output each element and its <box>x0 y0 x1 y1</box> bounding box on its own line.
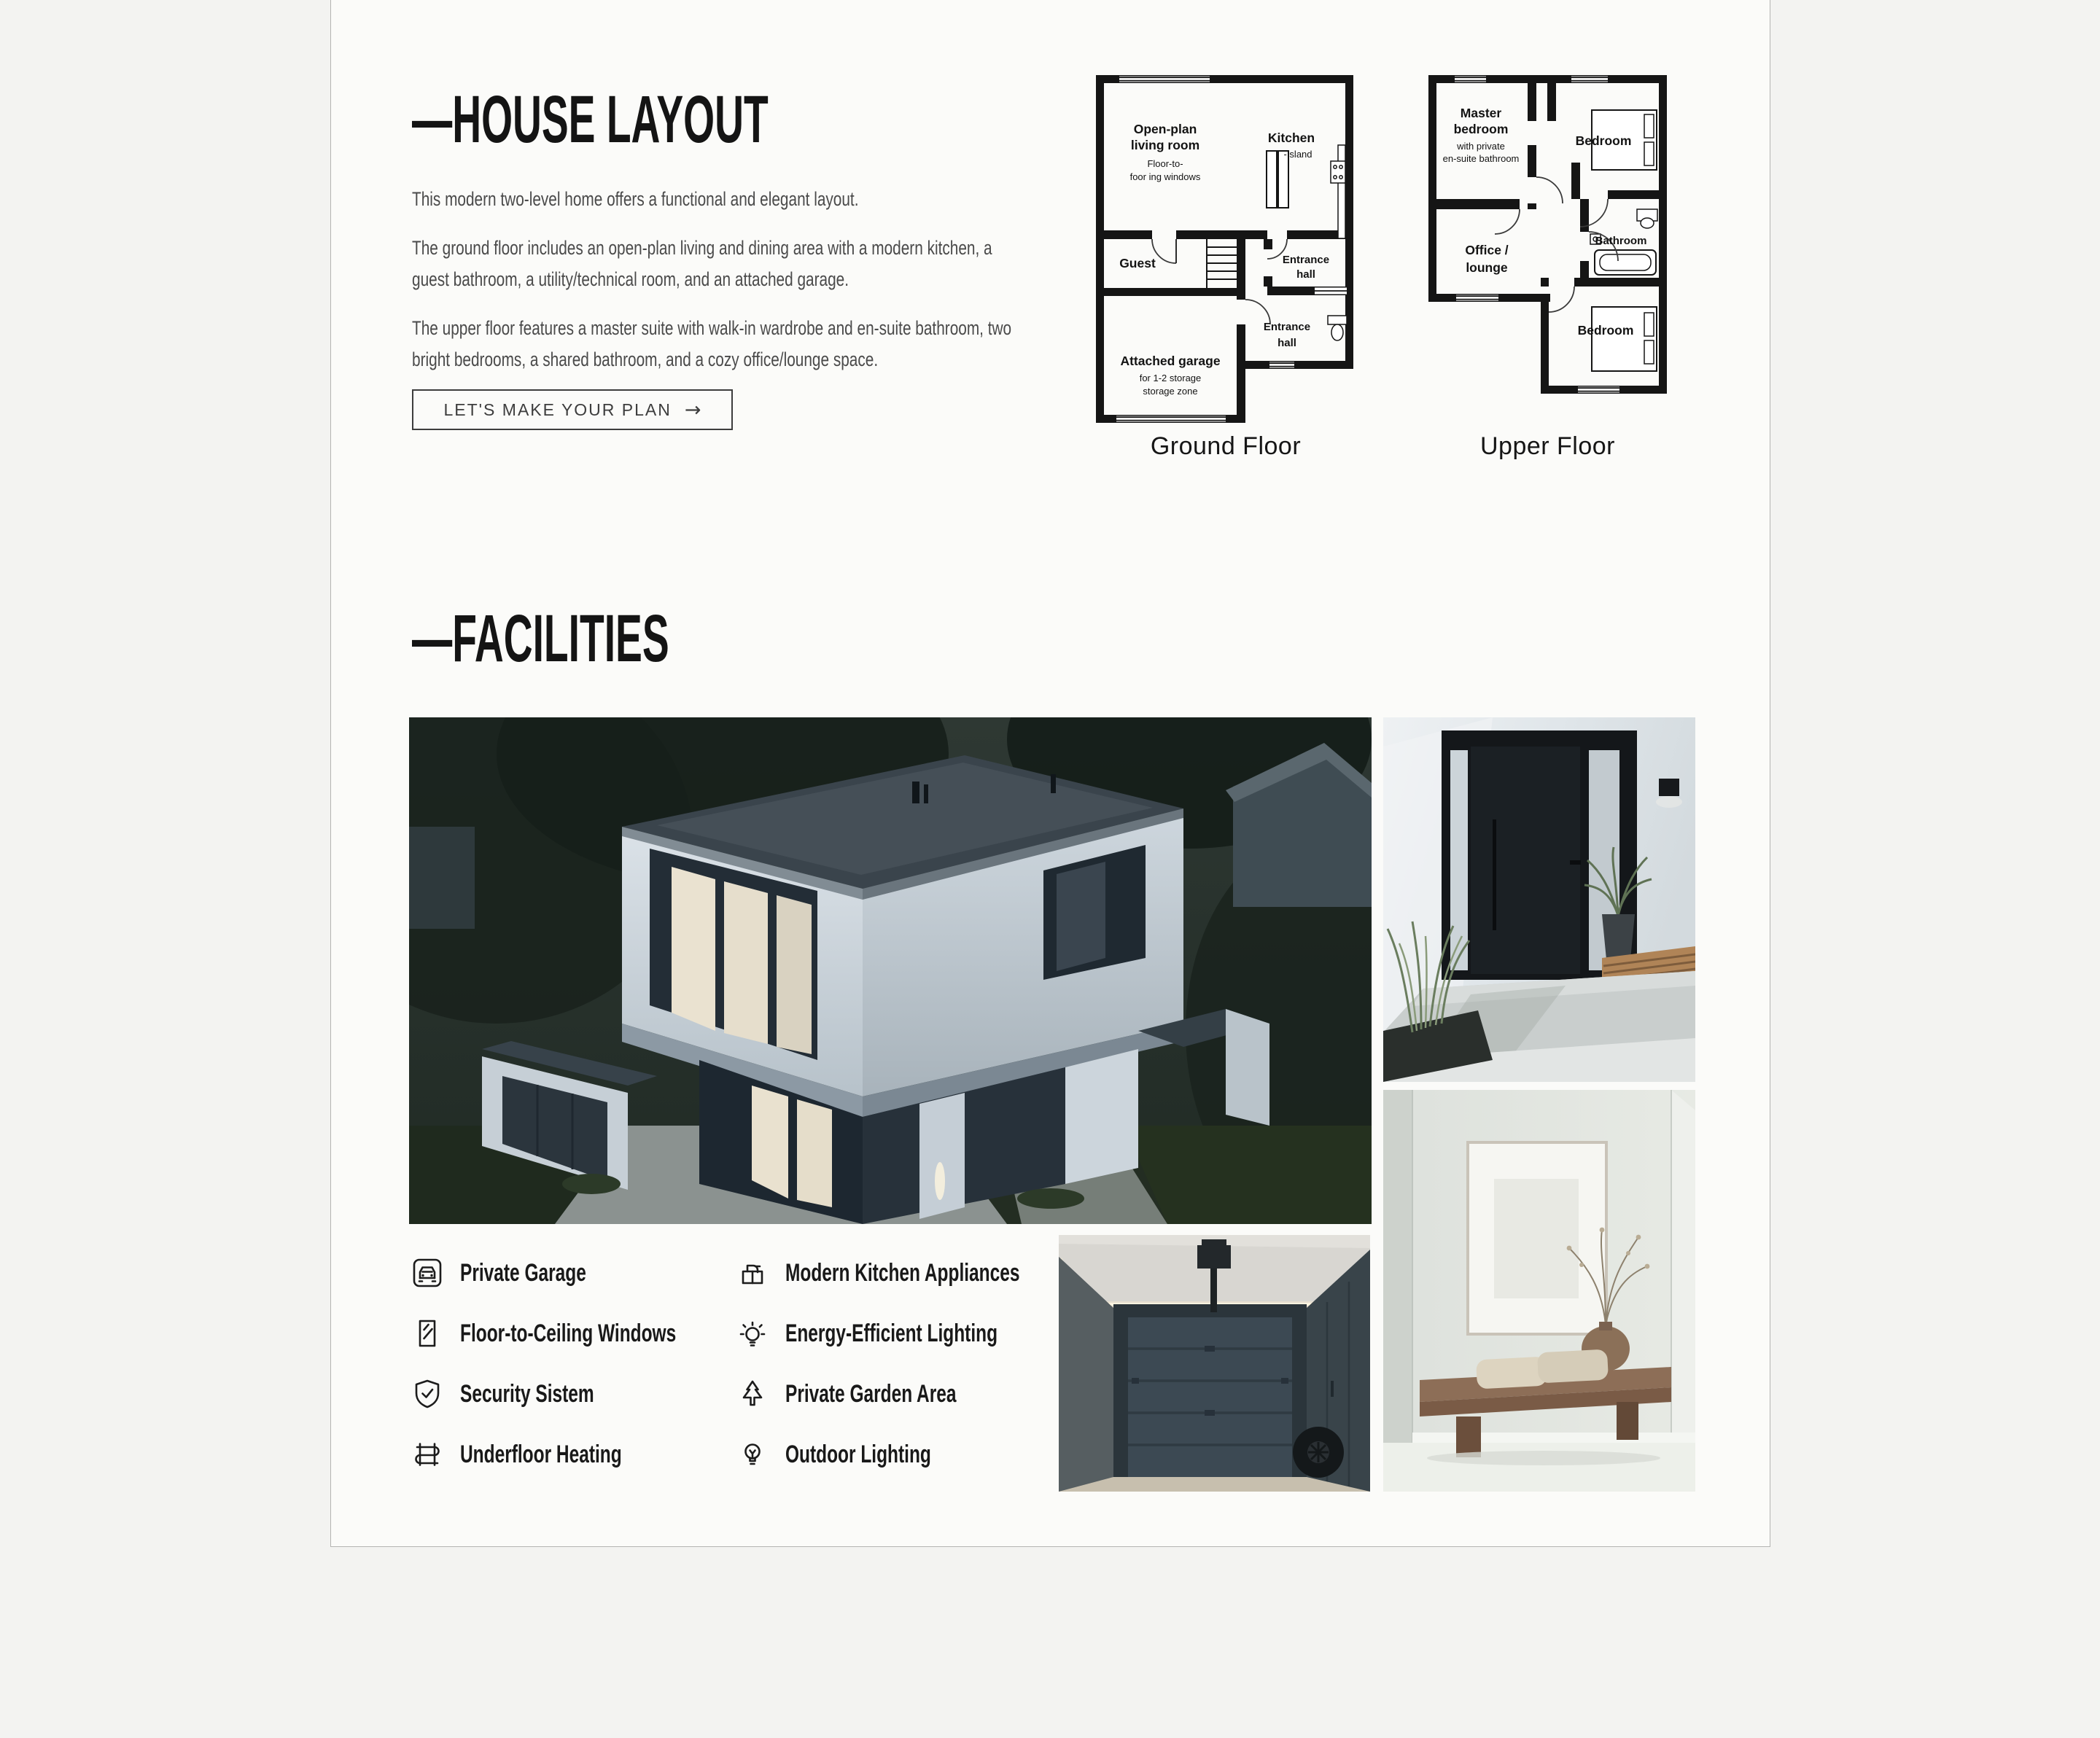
upper-master-label-1: Master <box>1461 106 1502 120</box>
upper-master-sub-1: with private <box>1456 141 1505 152</box>
photo-entrance-door <box>1383 717 1695 1082</box>
heating-coil-icon <box>411 1438 444 1471</box>
photo-main-house-exterior <box>409 717 1372 1224</box>
ground-floor-caption: Ground Floor <box>1096 432 1356 461</box>
make-your-plan-button[interactable]: LET'S MAKE YOUR PLAN → <box>412 389 733 430</box>
house-layout-heading-text: —HOUSE LAYOUT <box>412 86 769 153</box>
facilities-column-right: Modern Kitchen Appliances Energy-Efficie… <box>736 1250 1111 1498</box>
upper-office-label-2: lounge <box>1466 260 1508 275</box>
window-icon <box>411 1317 444 1350</box>
facility-label: Floor-to-Ceiling Windows <box>460 1320 676 1348</box>
ground-living-sub-2: foor ing windows <box>1130 171 1201 182</box>
facility-item-kitchen: Modern Kitchen Appliances <box>736 1256 1111 1290</box>
pine-tree-icon <box>736 1377 769 1411</box>
upper-bedroom-top-label: Bedroom <box>1576 133 1632 148</box>
main-house-illustration <box>409 717 1372 1224</box>
upper-floor-plan-drawing: Master bedroom with private en-suite bat… <box>1428 75 1667 394</box>
content-card: —HOUSE LAYOUT This modern two-level home… <box>330 0 1770 1547</box>
ground-living-label-2: living room <box>1131 138 1199 152</box>
facility-item-outdoor-lighting: Outdoor Lighting <box>736 1438 1111 1471</box>
facilities-heading-text: —FACILITIES <box>412 605 669 672</box>
kitchen-appliance-icon <box>736 1256 769 1290</box>
ground-garage-label: Attached garage <box>1120 354 1220 368</box>
bulb-rays-icon <box>736 1317 769 1350</box>
house-layout-intro: This modern two-level home offers a func… <box>412 184 1024 393</box>
facility-label: Modern Kitchen Appliances <box>785 1259 1019 1287</box>
facility-item-lighting: Energy-Efficient Lighting <box>736 1317 1111 1350</box>
upper-floor-plan: Master bedroom with private en-suite bat… <box>1428 75 1667 394</box>
ground-floor-plan: Open-plan living room Floor-to- foor ing… <box>1096 75 1356 423</box>
upper-office-label-1: Office / <box>1465 243 1508 257</box>
ground-island-label: -Island <box>1283 149 1312 160</box>
facility-item-heating: Underfloor Heating <box>411 1438 736 1471</box>
ground-garage-sub-2: storage zone <box>1143 386 1197 397</box>
intro-paragraph-1: This modern two-level home offers a func… <box>412 184 1024 215</box>
house-layout-heading: —HOUSE LAYOUT <box>412 86 1006 153</box>
ground-floor-plan-drawing: Open-plan living room Floor-to- foor ing… <box>1096 75 1356 423</box>
page: { "theme": { "page_bg": "#f3f3f1", "card… <box>0 0 2100 1738</box>
facilities-column-left: Private Garage Floor-to-Ceiling Windows <box>411 1250 736 1498</box>
facilities-list: Private Garage Floor-to-Ceiling Windows <box>411 1250 1067 1498</box>
shield-check-icon <box>411 1377 444 1411</box>
ground-living-sub-1: Floor-to- <box>1147 158 1183 169</box>
facility-item-security: Security Sistem <box>411 1377 736 1411</box>
facility-label: Energy-Efficient Lighting <box>785 1320 997 1348</box>
arrow-right-icon: → <box>685 399 701 421</box>
intro-paragraph-2: The ground floor includes an open-plan l… <box>412 233 1024 295</box>
interior-bench-illustration <box>1383 1090 1695 1492</box>
facility-label: Security Sistem <box>460 1380 594 1408</box>
ground-guest-label: Guest <box>1119 256 1156 270</box>
entrance-illustration <box>1383 717 1695 1082</box>
upper-bedroom-bottom-label: Bedroom <box>1578 323 1634 338</box>
ground-garage-sub-1: for 1-2 storage <box>1140 373 1202 383</box>
photo-interior-bench <box>1383 1090 1695 1492</box>
upper-master-label-2: bedroom <box>1454 122 1509 136</box>
ground-entrance-hall-1-line-2: hall <box>1296 268 1315 281</box>
facilities-heading: —FACILITIES <box>412 605 841 672</box>
garage-icon <box>411 1256 444 1290</box>
ground-living-label-1: Open-plan <box>1134 122 1197 136</box>
ground-entrance-hall-2-line-1: Entrance <box>1264 321 1310 333</box>
make-your-plan-label: LET'S MAKE YOUR PLAN <box>443 400 671 420</box>
facility-label: Underfloor Heating <box>460 1441 622 1469</box>
facility-item-garden: Private Garden Area <box>736 1377 1111 1411</box>
ground-entrance-hall-1-line-1: Entrance <box>1283 254 1329 266</box>
facility-label: Private Garden Area <box>785 1380 956 1408</box>
ground-entrance-hall-2-line-2: hall <box>1277 337 1296 349</box>
facility-item-windows: Floor-to-Ceiling Windows <box>411 1317 736 1350</box>
facility-label: Private Garage <box>460 1259 586 1287</box>
upper-bathroom-label: Bathroom <box>1595 235 1647 247</box>
upper-master-sub-2: en-suite bathroom <box>1443 153 1520 164</box>
intro-paragraph-3: The upper floor features a master suite … <box>412 313 1024 375</box>
upper-floor-caption: Upper Floor <box>1428 432 1667 461</box>
ground-kitchen-label: Kitchen <box>1268 130 1315 145</box>
bulb-icon <box>736 1438 769 1471</box>
facility-item-private-garage: Private Garage <box>411 1256 736 1290</box>
facility-label: Outdoor Lighting <box>785 1441 931 1469</box>
